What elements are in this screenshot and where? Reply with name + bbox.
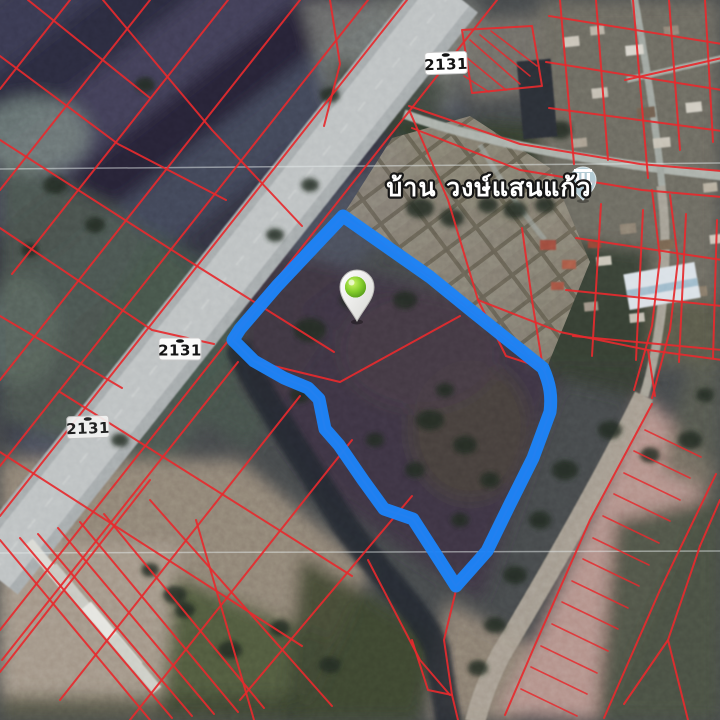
- route-shield-label: 2131: [66, 419, 110, 439]
- route-shield-2131-top: 2131: [424, 51, 468, 75]
- route-shield-2131-left: 2131: [66, 415, 110, 439]
- map-canvas[interactable]: 2131 2131 2131 บ้าน วงษ์แสนแก้ว: [0, 0, 720, 720]
- route-shield-label: 2131: [424, 55, 468, 75]
- route-shield-2131-middle: 2131: [158, 338, 202, 360]
- route-shield-label: 2131: [158, 342, 202, 360]
- satellite-basemap: [0, 0, 720, 720]
- village-place-marker[interactable]: บ้าน วงษ์แสนแก้ว: [386, 167, 596, 203]
- place-label: บ้าน วงษ์แสนแก้ว: [386, 173, 591, 202]
